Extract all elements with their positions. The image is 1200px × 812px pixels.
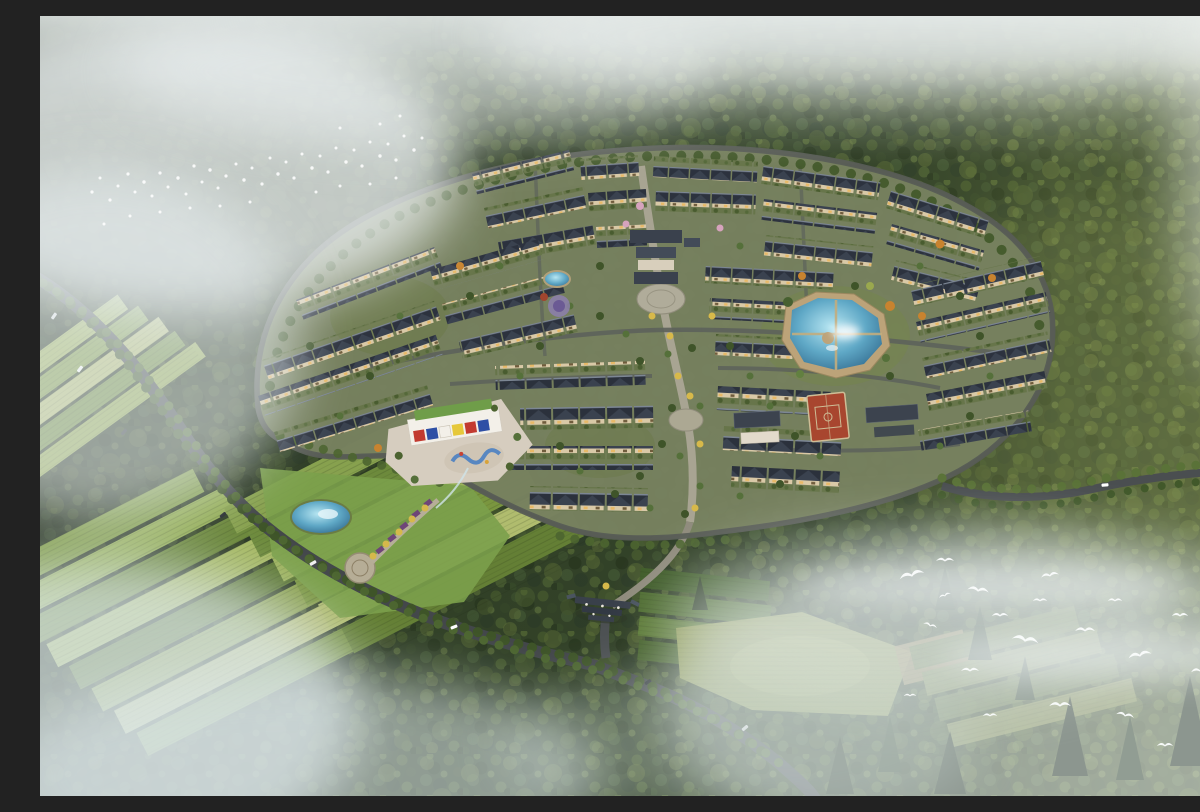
basketball-court <box>807 392 850 442</box>
scene-canvas <box>40 16 1200 796</box>
aerial-rendering: Bird's-eye architectural rendering of a … <box>40 16 1200 796</box>
